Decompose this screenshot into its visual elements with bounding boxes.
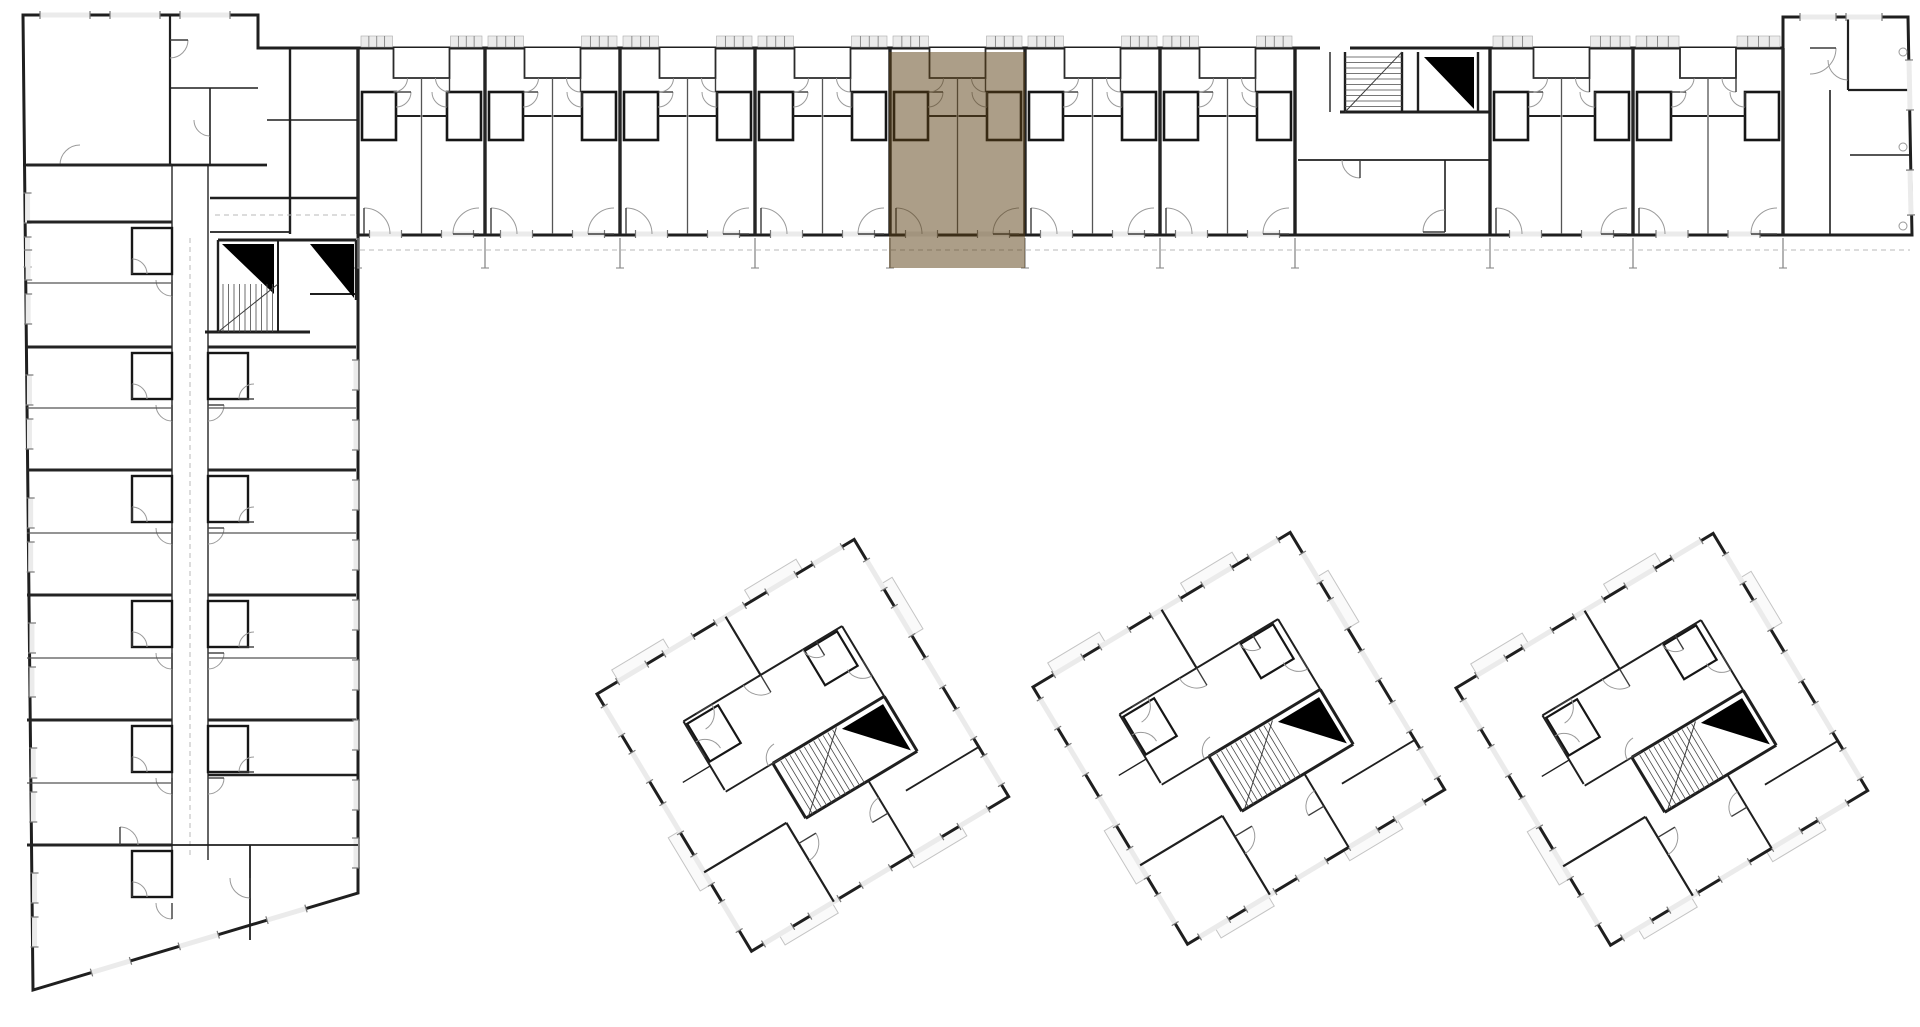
bathroom-pod [208,601,248,647]
tower-3 [1438,516,1885,962]
apartment-unit[interactable] [755,36,890,238]
apartment-unit[interactable] [1160,36,1295,238]
apartment-unit[interactable] [620,36,755,238]
unit-hotspot[interactable] [1025,48,1160,234]
apartment-unit[interactable] [1025,36,1160,238]
unit-hotspot[interactable] [1160,48,1295,234]
apartment-unit[interactable] [1633,36,1783,238]
unit-hotspot[interactable] [755,48,890,234]
bathroom-pod [208,353,248,399]
floor-plan-canvas [0,0,1920,1027]
long-wing [210,13,1915,268]
apartment-unit[interactable] [485,36,620,238]
unit-hotspot[interactable] [1633,48,1783,234]
tower-1 [579,522,1026,968]
unit-hotspot[interactable] [1490,48,1633,234]
apartment-unit[interactable] [1490,36,1633,238]
bathroom-pod [132,476,172,522]
bathroom-pod [208,726,248,772]
bathroom-pod [132,228,172,274]
selected-unit-overlay[interactable] [889,52,1025,268]
tower-2 [1015,515,1462,961]
bathroom-pod [132,726,172,772]
floor-plan-svg [0,0,1920,1027]
unit-hotspot[interactable] [358,48,485,234]
window [1910,170,1911,215]
bathroom-pod [132,601,172,647]
unit-hotspot[interactable] [485,48,620,234]
bathroom-pod [208,476,248,522]
window [1909,60,1910,110]
bathroom-pod [132,851,172,897]
apartment-unit[interactable] [358,36,485,238]
unit-hotspot[interactable] [620,48,755,234]
bathroom-pod [132,353,172,399]
